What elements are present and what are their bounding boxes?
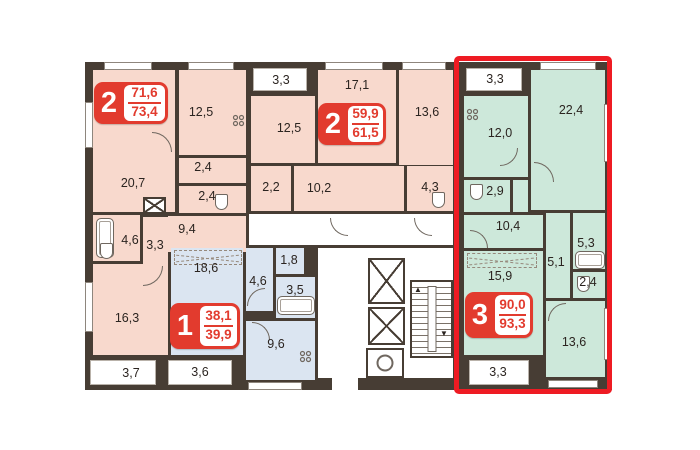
stove-icon xyxy=(232,114,245,132)
toilet xyxy=(432,192,445,208)
room-area-label: 10,2 xyxy=(307,181,331,195)
room-area-label: 18,6 xyxy=(194,261,218,275)
selected-apartment-outline xyxy=(454,56,612,394)
room-area-label: 13,6 xyxy=(415,105,439,119)
room-area-label: 16,3 xyxy=(115,311,139,325)
room-area-label: 4,6 xyxy=(249,274,266,288)
floor-plan: ▲ ▼ xyxy=(0,0,700,450)
room-area-label: 2,2 xyxy=(262,180,279,194)
stairs-down-arrow: ▼ xyxy=(440,330,448,338)
apartment-areas: 71,6 73,4 xyxy=(124,85,165,121)
room-area-label: 3,3 xyxy=(146,238,163,252)
apartment-number: 2 xyxy=(97,85,121,121)
room-area-label: 4,6 xyxy=(121,233,138,247)
area-top: 71,6 xyxy=(128,85,160,104)
apartment-badge-2-middle[interactable]: 2 59,9 61,5 xyxy=(318,103,386,145)
room-area-label: 9,6 xyxy=(267,337,284,351)
room-area-label: 1,8 xyxy=(280,253,297,267)
area-bottom: 39,9 xyxy=(204,327,233,344)
window xyxy=(85,282,93,332)
apartment-badge-1[interactable]: 1 38,1 39,9 xyxy=(170,303,240,349)
elevator-shaft xyxy=(368,258,405,304)
stairs-up-arrow: ▲ xyxy=(414,286,422,294)
room-area-label: 3,5 xyxy=(286,283,303,297)
room-area-label: 4,3 xyxy=(421,180,438,194)
area-top: 59,9 xyxy=(352,106,379,125)
stove-icon xyxy=(299,350,312,368)
room-area-label: 17,1 xyxy=(345,78,369,92)
room-area-label: 3,7 xyxy=(122,366,139,380)
window xyxy=(104,62,152,70)
toilet xyxy=(215,194,228,210)
room-area-label: 12,5 xyxy=(277,121,301,135)
room-area-label: 20,7 xyxy=(121,176,145,190)
apartment-areas: 38,1 39,9 xyxy=(200,306,237,346)
trash-chute-icon xyxy=(377,355,394,372)
stair-stringer xyxy=(427,286,436,352)
apartment-areas: 59,9 61,5 xyxy=(348,106,383,142)
apartment-badge-2-left[interactable]: 2 71,6 73,4 xyxy=(94,82,168,124)
window xyxy=(402,62,446,70)
room-area-label: 12,5 xyxy=(189,105,213,119)
window xyxy=(248,382,302,390)
room-area-label: 2,4 xyxy=(198,189,215,203)
room-area-label: 2,4 xyxy=(194,160,211,174)
room xyxy=(179,158,246,183)
window xyxy=(325,62,383,70)
room-area-label: 9,4 xyxy=(178,222,195,236)
room-area-label: 3,3 xyxy=(272,73,289,87)
trash-chute-room xyxy=(366,348,404,378)
toilet xyxy=(100,243,113,259)
ventilation-shaft xyxy=(143,197,166,214)
area-bottom: 61,5 xyxy=(352,125,379,142)
elevator-shaft xyxy=(368,307,405,345)
window xyxy=(188,62,234,70)
area-bottom: 73,4 xyxy=(128,104,160,121)
bathtub xyxy=(277,296,315,315)
area-top: 38,1 xyxy=(204,308,233,327)
apartment-number: 1 xyxy=(173,306,197,346)
apartment-number: 2 xyxy=(321,106,345,142)
entrance-gap xyxy=(332,378,358,390)
window xyxy=(85,102,93,148)
room-area-label: 3,6 xyxy=(191,365,208,379)
